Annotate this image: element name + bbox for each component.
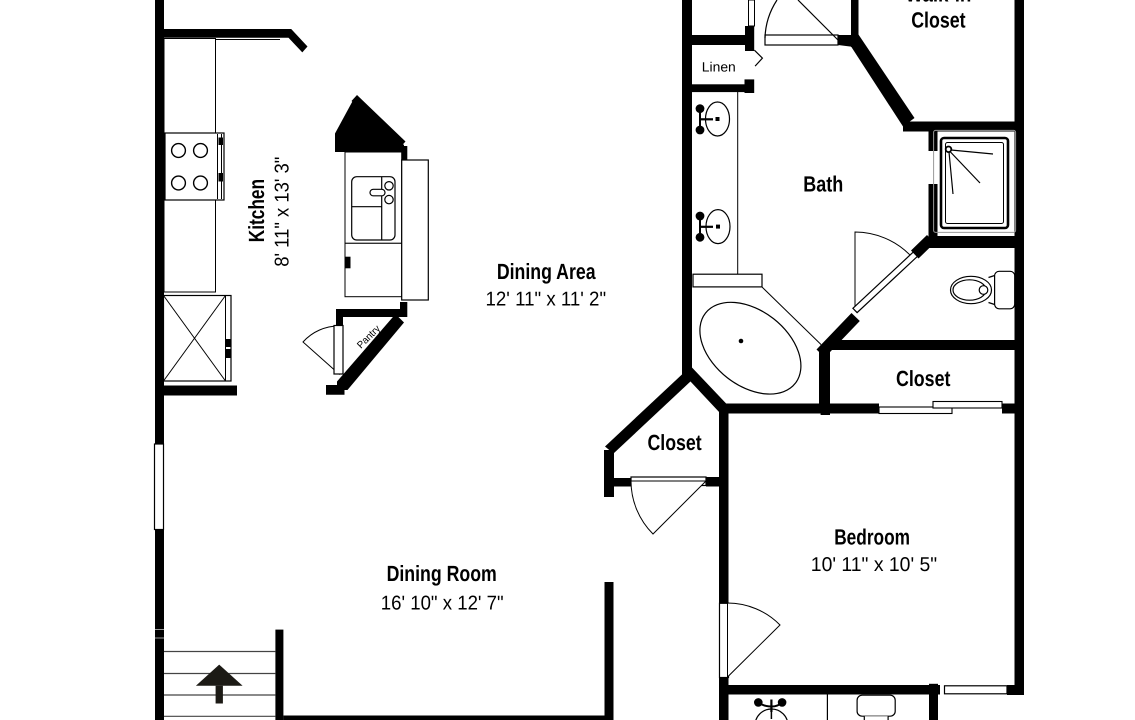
svg-text:Linen: Linen: [702, 59, 736, 74]
svg-text:Dining Room: Dining Room: [387, 561, 497, 586]
svg-text:16' 10" x 12' 7": 16' 10" x 12' 7": [381, 593, 504, 615]
svg-text:Dining Area: Dining Area: [497, 259, 596, 284]
svg-text:Closet: Closet: [896, 366, 951, 391]
svg-text:Bath: Bath: [803, 172, 843, 197]
svg-text:8' 11" x 13' 3": 8' 11" x 13' 3": [271, 157, 293, 267]
svg-text:10' 11" x 10' 5": 10' 11" x 10' 5": [811, 554, 937, 576]
svg-text:Closet: Closet: [648, 430, 703, 455]
svg-text:Bedroom: Bedroom: [834, 525, 910, 550]
svg-text:Closet: Closet: [911, 8, 966, 33]
svg-text:Walk-in: Walk-in: [905, 0, 971, 7]
svg-text:12' 11" x 11' 2": 12' 11" x 11' 2": [486, 289, 607, 311]
svg-text:Kitchen: Kitchen: [244, 179, 269, 242]
